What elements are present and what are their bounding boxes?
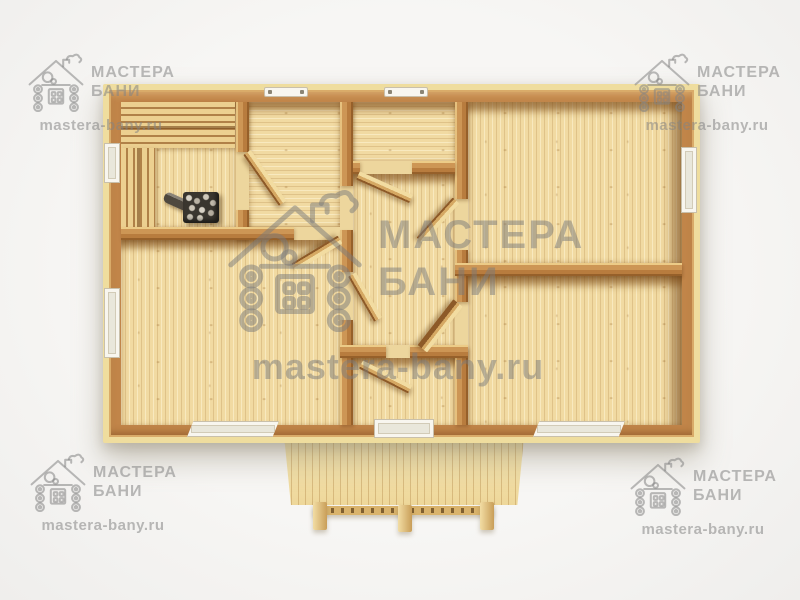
brand-line1: МАСТЕРА <box>91 63 175 82</box>
log-cabin-icon <box>628 456 688 516</box>
sauna-bench-left-tier <box>121 148 155 227</box>
brand-line1: МАСТЕРА <box>378 212 584 259</box>
watermark-url: mastera-bany.ru <box>632 117 782 134</box>
entrance-door-threshold <box>374 419 434 438</box>
vent-washing-top <box>264 87 308 97</box>
sauna-stove <box>183 192 219 223</box>
watermark-brand: МАСТЕРА БАНИ <box>378 212 584 306</box>
wall-wash-hall-upper <box>340 102 353 186</box>
brand-line2: БАНИ <box>693 486 777 505</box>
watermark-brand: МАСТЕРА БАНИ <box>91 63 175 101</box>
wall-wc-hall-right <box>412 161 455 174</box>
window-bottom-right-room <box>533 421 625 437</box>
watermark-url: mastera-bany.ru <box>222 346 574 388</box>
watermark-bottom-right: МАСТЕРА БАНИ mastera-bany.ru <box>628 456 778 538</box>
watermark-brand: МАСТЕРА БАНИ <box>697 63 781 101</box>
brand-line1: МАСТЕРА <box>697 63 781 82</box>
brand-line2: БАНИ <box>91 82 175 101</box>
wall-hall-living-upper <box>455 102 468 199</box>
brand-line2: БАНИ <box>93 482 177 501</box>
vent-wc-top <box>384 87 428 97</box>
wall-steam-wash-upper <box>236 102 249 152</box>
window-steam-left <box>104 143 120 183</box>
brand-line2: БАНИ <box>378 259 584 306</box>
log-cabin-icon <box>26 52 86 112</box>
porch-deck <box>277 441 530 505</box>
watermark-brand: МАСТЕРА БАНИ <box>93 463 177 501</box>
watermark-top-left: МАСТЕРА БАНИ mastera-bany.ru <box>26 52 176 134</box>
window-rest-left <box>104 288 120 358</box>
watermark-url: mastera-bany.ru <box>28 517 178 534</box>
watermark-brand: МАСТЕРА БАНИ <box>693 467 777 505</box>
banya-floor-plan-render: МАСТЕРА БАНИ mastera-bany.ru МАСТЕРА БАН… <box>0 0 800 600</box>
log-cabin-icon <box>28 452 88 512</box>
brand-line1: МАСТЕРА <box>693 467 777 486</box>
log-cabin-icon <box>632 52 692 112</box>
porch-post-left <box>313 502 327 530</box>
window-living-right <box>681 147 697 213</box>
watermark-center: МАСТЕРА БАНИ mastera-bany.ru <box>222 186 574 388</box>
brand-line2: БАНИ <box>697 82 781 101</box>
watermark-url: mastera-bany.ru <box>628 521 778 538</box>
room-wc <box>353 102 455 161</box>
log-cabin-icon <box>222 186 368 332</box>
watermark-url: mastera-bany.ru <box>26 117 176 134</box>
brand-line1: МАСТЕРА <box>93 463 177 482</box>
window-rest-bottom <box>187 421 279 437</box>
porch-post-right <box>480 502 494 530</box>
porch-post-middle <box>398 505 412 532</box>
watermark-bottom-left: МАСТЕРА БАНИ mastera-bany.ru <box>28 452 178 534</box>
watermark-top-right: МАСТЕРА БАНИ mastera-bany.ru <box>632 52 782 134</box>
